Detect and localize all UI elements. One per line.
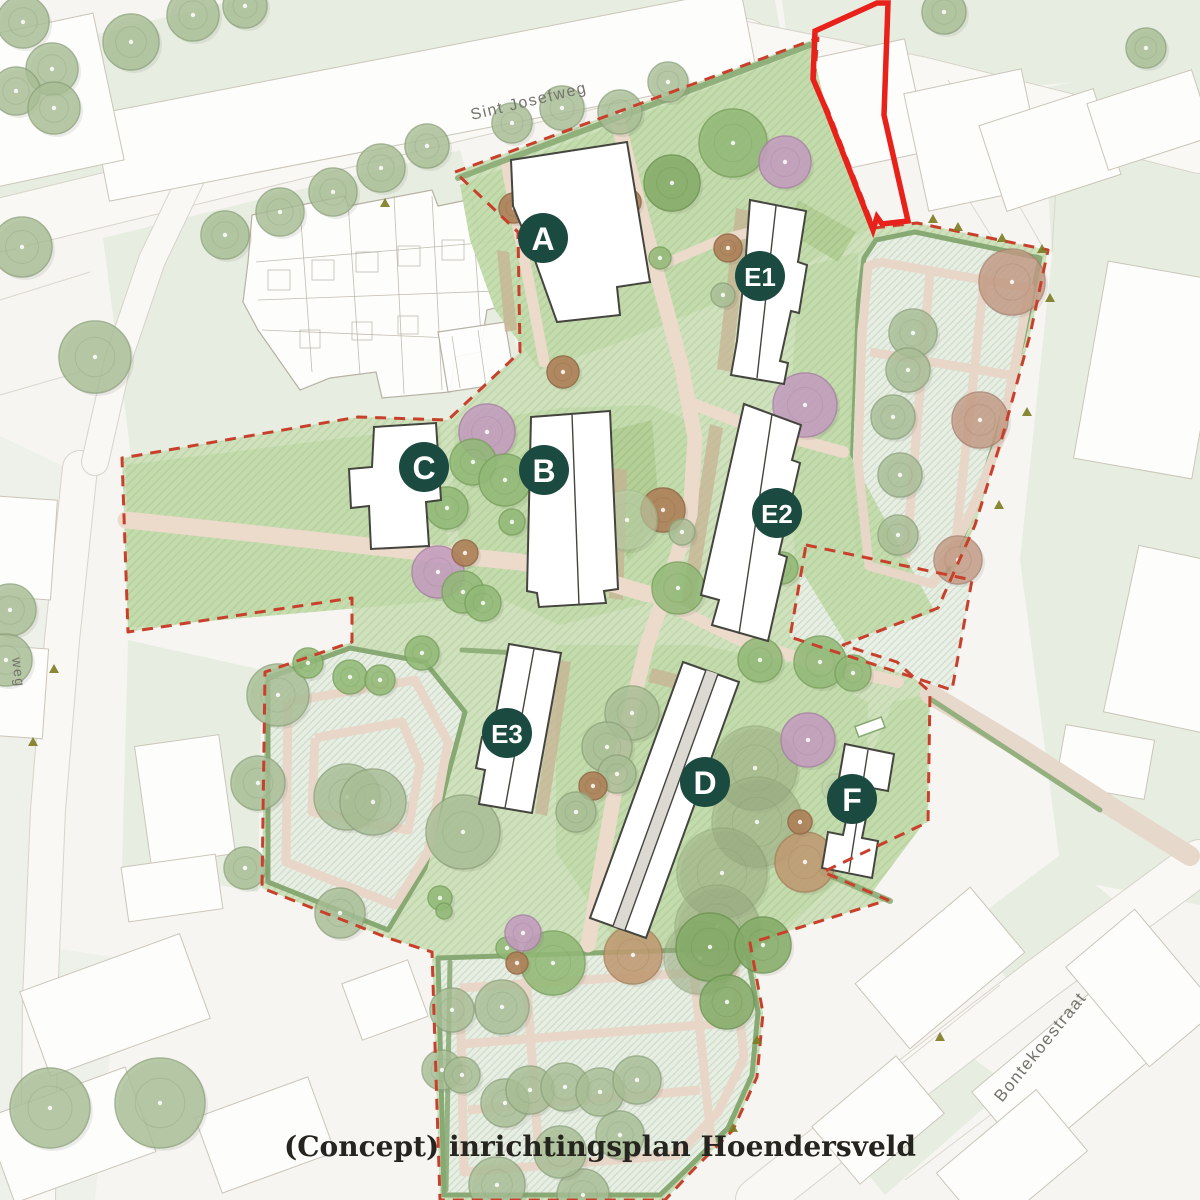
plan-caption: (Concept) inrichtingsplan Hoendersveld [284,1130,916,1163]
building-badge-E3: E3 [482,708,532,758]
svg-text:F: F [842,782,862,818]
tree-sage [0,0,52,51]
site-plan-page: Sint JosefwegBontekoestraatwegAE1CBE2E3D… [0,0,1200,1200]
building-badge-C: C [399,442,449,492]
svg-text:D: D [693,765,716,801]
building-B [527,411,618,607]
svg-text:E3: E3 [491,719,523,749]
svg-text:A: A [531,221,554,257]
building-badge-E2: E2 [752,488,802,538]
map-layers [0,0,1200,1200]
svg-text:C: C [412,450,435,486]
building-badge-E1: E1 [735,251,785,301]
site-plan-map: Sint JosefwegBontekoestraatwegAE1CBE2E3D… [0,0,1200,1200]
building-badge-A: A [518,213,568,263]
context-building [135,735,236,866]
building-badge-F: F [827,774,877,824]
svg-text:E1: E1 [744,262,776,292]
building-badge-D: D [680,757,730,807]
svg-text:E2: E2 [761,499,793,529]
svg-text:B: B [532,453,555,489]
building-badge-B: B [519,445,569,495]
